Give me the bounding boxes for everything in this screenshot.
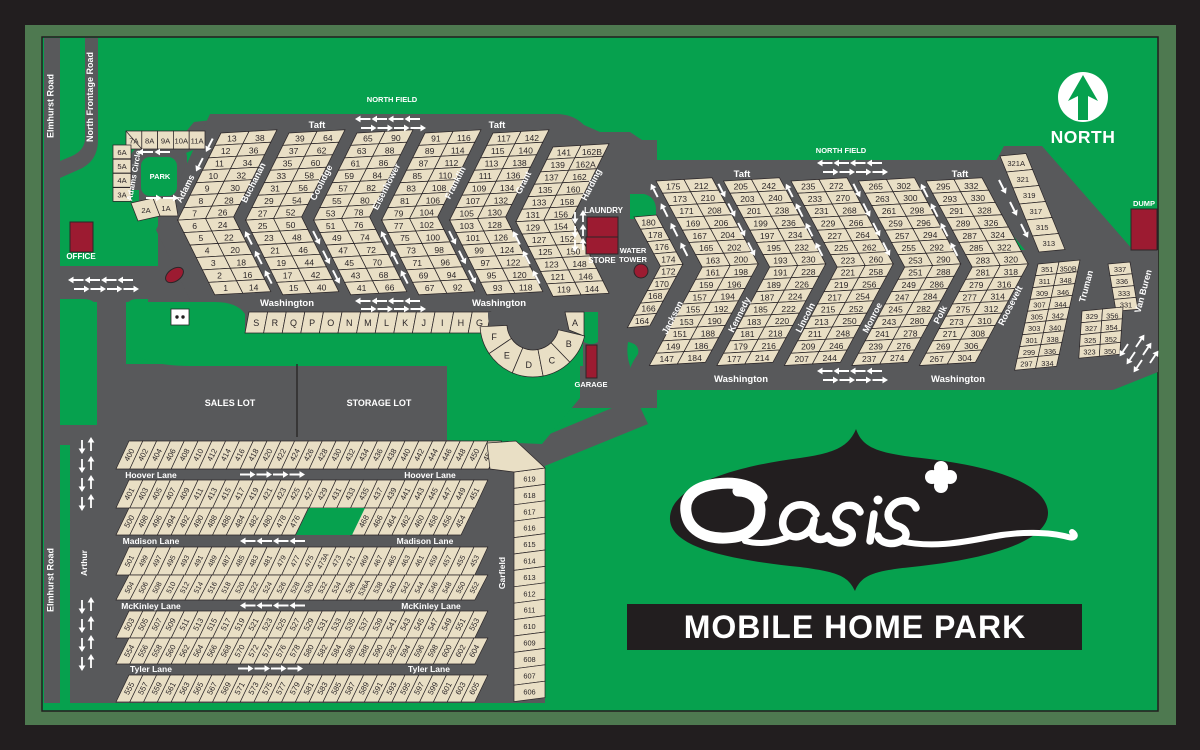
svg-text:Taft: Taft (309, 120, 327, 131)
svg-text:P: P (309, 318, 315, 328)
svg-text:327: 327 (1085, 324, 1097, 333)
svg-text:162A: 162A (576, 160, 596, 170)
svg-text:106: 106 (426, 195, 441, 205)
svg-text:313: 313 (1042, 239, 1055, 248)
svg-text:B: B (566, 339, 572, 349)
svg-text:1A: 1A (161, 204, 171, 213)
svg-text:280: 280 (910, 316, 925, 326)
svg-text:154: 154 (554, 222, 569, 232)
svg-text:49: 49 (332, 233, 342, 243)
svg-text:38: 38 (255, 133, 265, 143)
svg-text:H: H (458, 318, 465, 328)
svg-text:Hoover Lane: Hoover Lane (125, 470, 177, 480)
svg-text:239: 239 (869, 342, 884, 352)
svg-text:NORTH: NORTH (1051, 127, 1116, 147)
svg-text:279: 279 (969, 280, 984, 290)
svg-text:68: 68 (379, 270, 389, 280)
svg-text:40: 40 (317, 282, 327, 292)
svg-text:61: 61 (351, 159, 361, 169)
svg-text:197: 197 (760, 231, 775, 241)
svg-text:121: 121 (551, 272, 566, 282)
svg-text:100: 100 (426, 233, 441, 243)
svg-text:168: 168 (648, 291, 663, 301)
svg-text:39: 39 (295, 134, 305, 144)
svg-text:254: 254 (856, 292, 871, 302)
svg-text:129: 129 (526, 222, 541, 232)
svg-text:101: 101 (466, 233, 481, 243)
svg-text:319: 319 (1023, 191, 1036, 200)
svg-text:Arthur: Arthur (79, 549, 89, 576)
svg-text:Madison Lane: Madison Lane (397, 536, 454, 546)
svg-text:214: 214 (755, 353, 770, 363)
svg-text:146: 146 (579, 272, 594, 282)
svg-text:277: 277 (963, 292, 978, 302)
svg-text:C: C (549, 355, 556, 365)
svg-text:J: J (421, 318, 426, 328)
svg-text:151: 151 (673, 329, 688, 339)
svg-text:308: 308 (971, 329, 986, 339)
svg-text:126: 126 (494, 233, 509, 243)
svg-text:66: 66 (385, 282, 395, 292)
svg-text:133: 133 (532, 197, 547, 207)
svg-text:138: 138 (512, 158, 527, 168)
svg-text:332: 332 (964, 181, 979, 191)
svg-text:89: 89 (425, 146, 435, 156)
svg-text:350: 350 (1104, 347, 1116, 356)
svg-text:229: 229 (821, 219, 836, 229)
svg-text:198: 198 (734, 267, 749, 277)
svg-text:104: 104 (420, 208, 435, 218)
svg-text:A: A (572, 318, 578, 328)
svg-text:205: 205 (734, 182, 749, 192)
svg-text:152: 152 (560, 234, 575, 244)
svg-text:194: 194 (721, 292, 736, 302)
svg-text:173: 173 (673, 194, 688, 204)
svg-text:227: 227 (828, 231, 843, 241)
svg-text:171: 171 (679, 206, 694, 216)
svg-text:I: I (441, 318, 444, 328)
svg-text:305: 305 (1031, 312, 1043, 321)
svg-text:107: 107 (466, 196, 481, 206)
svg-text:193: 193 (773, 255, 788, 265)
svg-text:325: 325 (1084, 336, 1096, 345)
svg-text:Washington: Washington (260, 298, 314, 309)
svg-text:615: 615 (523, 540, 535, 549)
svg-text:608: 608 (523, 655, 535, 664)
svg-text:201: 201 (747, 206, 762, 216)
svg-text:294: 294 (923, 230, 938, 240)
svg-text:10: 10 (209, 171, 219, 181)
svg-text:OFFICE: OFFICE (66, 252, 96, 261)
svg-text:9A: 9A (161, 137, 171, 146)
svg-text:160: 160 (566, 184, 581, 194)
svg-text:33: 33 (277, 171, 287, 181)
svg-text:Elmhurst Road: Elmhurst Road (46, 74, 56, 138)
svg-text:271: 271 (943, 329, 958, 339)
svg-text:283: 283 (976, 255, 991, 265)
svg-text:N: N (346, 318, 353, 328)
svg-text:64: 64 (323, 133, 333, 143)
svg-text:132: 132 (494, 195, 509, 205)
svg-text:135: 135 (538, 185, 553, 195)
svg-text:80: 80 (360, 195, 370, 205)
svg-text:240: 240 (768, 193, 783, 203)
svg-text:184: 184 (688, 353, 703, 363)
svg-text:287: 287 (963, 231, 978, 241)
svg-text:4A: 4A (117, 176, 127, 185)
svg-text:162: 162 (572, 172, 587, 182)
svg-text:321A: 321A (1007, 159, 1026, 168)
svg-text:156: 156 (554, 209, 569, 219)
svg-text:249: 249 (902, 280, 917, 290)
svg-text:79: 79 (394, 208, 404, 218)
svg-text:307: 307 (1033, 301, 1045, 310)
svg-text:58: 58 (305, 170, 315, 180)
svg-text:264: 264 (856, 230, 871, 240)
svg-text:211: 211 (808, 329, 822, 339)
svg-text:616: 616 (523, 524, 535, 533)
svg-text:164: 164 (635, 316, 650, 326)
svg-text:42: 42 (311, 270, 321, 280)
svg-text:22: 22 (224, 233, 234, 243)
svg-text:Hoover Lane: Hoover Lane (404, 470, 456, 480)
svg-text:TOWER: TOWER (619, 255, 647, 264)
svg-text:5A: 5A (117, 162, 127, 171)
svg-text:2: 2 (217, 271, 222, 281)
svg-text:20: 20 (230, 245, 240, 255)
svg-text:95: 95 (487, 271, 497, 281)
svg-text:250: 250 (842, 316, 857, 326)
svg-text:88: 88 (385, 146, 395, 156)
svg-text:314: 314 (991, 292, 1006, 302)
svg-text:183: 183 (747, 317, 762, 327)
svg-text:330: 330 (971, 193, 986, 203)
svg-text:LAUNDRY: LAUNDRY (584, 206, 623, 215)
svg-text:209: 209 (801, 342, 816, 352)
svg-text:268: 268 (842, 206, 857, 216)
svg-text:72: 72 (366, 245, 376, 255)
svg-text:30: 30 (230, 183, 240, 193)
svg-text:235: 235 (801, 182, 816, 192)
svg-text:D: D (525, 360, 532, 370)
svg-text:204: 204 (721, 230, 736, 240)
svg-text:116: 116 (457, 133, 471, 143)
svg-text:300: 300 (903, 193, 918, 203)
svg-text:213: 213 (814, 317, 829, 327)
svg-text:210: 210 (701, 193, 716, 203)
svg-text:180: 180 (641, 218, 656, 228)
svg-text:166: 166 (641, 304, 656, 314)
svg-text:65: 65 (363, 134, 373, 144)
svg-text:317: 317 (1029, 207, 1042, 216)
svg-text:316: 316 (997, 279, 1012, 289)
svg-text:613: 613 (523, 573, 535, 582)
svg-text:13: 13 (227, 134, 237, 144)
svg-text:322: 322 (997, 242, 1012, 252)
svg-text:131: 131 (526, 210, 541, 220)
svg-text:67: 67 (425, 283, 435, 293)
svg-text:199: 199 (753, 219, 768, 229)
svg-text:157: 157 (693, 292, 708, 302)
svg-text:Madison Lane: Madison Lane (123, 536, 180, 546)
svg-text:333: 333 (1118, 289, 1130, 298)
svg-text:11A: 11A (191, 137, 205, 146)
svg-text:74: 74 (360, 233, 370, 243)
svg-text:162B: 162B (582, 147, 602, 157)
svg-text:85: 85 (413, 171, 423, 181)
svg-text:176: 176 (655, 242, 670, 252)
svg-text:265: 265 (869, 182, 884, 192)
svg-text:296: 296 (916, 218, 931, 228)
svg-text:Washington: Washington (714, 374, 768, 385)
svg-text:51: 51 (326, 221, 336, 231)
svg-text:97: 97 (481, 258, 491, 268)
svg-text:242: 242 (762, 181, 777, 191)
svg-text:175: 175 (666, 182, 681, 192)
svg-text:186: 186 (694, 341, 709, 351)
svg-text:618: 618 (523, 491, 535, 500)
svg-text:99: 99 (474, 246, 484, 256)
svg-text:243: 243 (882, 317, 897, 327)
svg-text:Tyler Lane: Tyler Lane (130, 664, 172, 674)
svg-text:52: 52 (286, 208, 296, 218)
svg-text:45: 45 (345, 258, 355, 268)
svg-text:S: S (253, 318, 259, 328)
svg-text:220: 220 (775, 316, 790, 326)
svg-text:48: 48 (292, 233, 302, 243)
svg-text:75: 75 (400, 233, 410, 243)
svg-text:9: 9 (205, 183, 210, 193)
svg-text:DUMP: DUMP (1133, 199, 1155, 208)
svg-text:304: 304 (958, 353, 973, 363)
svg-text:253: 253 (908, 255, 923, 265)
svg-text:122: 122 (506, 258, 521, 268)
svg-text:321: 321 (1016, 175, 1029, 184)
svg-text:16: 16 (243, 270, 253, 280)
svg-text:189: 189 (767, 280, 782, 290)
svg-text:15: 15 (289, 283, 299, 293)
svg-text:611: 611 (524, 606, 536, 615)
svg-text:257: 257 (895, 231, 910, 241)
svg-text:Washington: Washington (931, 374, 985, 385)
svg-text:119: 119 (557, 285, 571, 295)
svg-text:4: 4 (205, 246, 210, 256)
svg-text:174: 174 (661, 254, 676, 264)
svg-text:90: 90 (391, 133, 401, 143)
svg-text:185: 185 (753, 305, 768, 315)
svg-text:34: 34 (243, 158, 253, 168)
svg-text:55: 55 (332, 196, 342, 206)
svg-text:71: 71 (413, 258, 423, 268)
svg-text:PARK: PARK (150, 172, 171, 181)
svg-text:GARAGE: GARAGE (575, 380, 608, 389)
svg-text:329: 329 (1086, 312, 1098, 321)
svg-text:289: 289 (956, 219, 971, 229)
svg-text:5: 5 (199, 233, 204, 243)
svg-text:238: 238 (775, 206, 790, 216)
svg-text:299: 299 (1023, 348, 1035, 357)
svg-text:41: 41 (357, 283, 367, 293)
svg-text:149: 149 (666, 342, 681, 352)
svg-text:Q: Q (290, 318, 297, 328)
svg-text:141: 141 (557, 148, 572, 158)
svg-text:165: 165 (699, 243, 714, 253)
svg-text:232: 232 (795, 242, 810, 252)
svg-text:212: 212 (694, 181, 709, 191)
svg-text:269: 269 (936, 342, 951, 352)
svg-text:56: 56 (298, 183, 308, 193)
svg-text:266: 266 (849, 218, 864, 228)
svg-text:275: 275 (956, 305, 971, 315)
svg-text:M: M (364, 318, 372, 328)
svg-text:36: 36 (249, 146, 259, 156)
svg-text:57: 57 (338, 183, 348, 193)
svg-text:12: 12 (221, 146, 231, 156)
svg-text:WATER: WATER (620, 246, 647, 255)
svg-text:318: 318 (1004, 267, 1019, 277)
svg-text:47: 47 (338, 246, 348, 256)
svg-text:200: 200 (734, 255, 749, 265)
svg-text:226: 226 (795, 279, 810, 289)
svg-text:285: 285 (969, 243, 984, 253)
svg-text:179: 179 (734, 342, 749, 352)
svg-text:43: 43 (351, 271, 361, 281)
svg-text:130: 130 (488, 208, 503, 218)
svg-text:6A: 6A (117, 148, 127, 157)
svg-text:120: 120 (512, 270, 527, 280)
svg-text:272: 272 (829, 181, 844, 191)
svg-text:117: 117 (497, 134, 511, 144)
svg-text:18: 18 (237, 258, 247, 268)
svg-text:607: 607 (523, 671, 535, 680)
svg-text:614: 614 (523, 557, 535, 566)
svg-text:619: 619 (523, 475, 535, 484)
svg-text:163: 163 (706, 255, 721, 265)
svg-text:96: 96 (441, 258, 451, 268)
svg-text:320: 320 (1004, 255, 1019, 265)
svg-text:337: 337 (1114, 265, 1126, 274)
svg-text:252: 252 (849, 304, 864, 314)
svg-text:169: 169 (686, 219, 701, 229)
svg-text:609: 609 (523, 639, 535, 648)
svg-text:190: 190 (707, 316, 722, 326)
svg-text:288: 288 (936, 267, 951, 277)
svg-text:McKinley Lane: McKinley Lane (401, 601, 461, 611)
svg-text:284: 284 (923, 292, 938, 302)
svg-text:315: 315 (1036, 223, 1049, 232)
svg-text:44: 44 (305, 258, 315, 268)
svg-text:127: 127 (532, 235, 547, 245)
svg-text:208: 208 (707, 206, 722, 216)
svg-text:217: 217 (828, 292, 843, 302)
svg-text:612: 612 (523, 589, 535, 598)
svg-text:267: 267 (930, 354, 945, 364)
svg-text:260: 260 (869, 255, 884, 265)
svg-text:24: 24 (218, 220, 228, 230)
svg-text:192: 192 (714, 304, 729, 314)
svg-text:94: 94 (447, 270, 457, 280)
svg-text:114: 114 (451, 146, 465, 156)
svg-text:312: 312 (984, 304, 999, 314)
svg-text:Tyler Lane: Tyler Lane (408, 664, 450, 674)
svg-text:136: 136 (506, 170, 521, 180)
svg-text:105: 105 (460, 208, 475, 218)
svg-text:25: 25 (258, 221, 268, 231)
svg-text:14: 14 (249, 282, 259, 292)
svg-text:256: 256 (862, 279, 877, 289)
svg-text:155: 155 (686, 305, 701, 315)
svg-text:167: 167 (693, 231, 708, 241)
svg-text:29: 29 (264, 196, 274, 206)
svg-text:54: 54 (292, 195, 302, 205)
svg-text:115: 115 (491, 146, 505, 156)
svg-text:37: 37 (289, 146, 299, 156)
svg-text:311: 311 (1039, 277, 1051, 286)
svg-text:336: 336 (1116, 277, 1128, 286)
svg-text:27: 27 (258, 208, 268, 218)
svg-text:113: 113 (485, 159, 499, 169)
svg-text:286: 286 (930, 279, 945, 289)
svg-text:78: 78 (354, 208, 364, 218)
svg-text:207: 207 (795, 354, 810, 364)
svg-text:111: 111 (479, 171, 492, 181)
svg-text:21: 21 (270, 246, 280, 256)
svg-text:326: 326 (984, 218, 999, 228)
svg-text:244: 244 (823, 353, 838, 363)
svg-text:110: 110 (438, 170, 452, 180)
svg-text:298: 298 (910, 206, 925, 216)
svg-text:290: 290 (936, 255, 951, 265)
svg-text:230: 230 (801, 255, 816, 265)
svg-text:617: 617 (523, 507, 535, 516)
svg-text:Elmhurst Road: Elmhurst Road (46, 548, 56, 612)
svg-text:246: 246 (829, 341, 844, 351)
svg-text:144: 144 (585, 284, 600, 294)
svg-text:103: 103 (460, 221, 475, 231)
svg-text:216: 216 (762, 341, 777, 351)
svg-text:248: 248 (836, 329, 851, 339)
svg-text:102: 102 (420, 220, 435, 230)
svg-text:202: 202 (727, 242, 742, 252)
svg-text:328: 328 (977, 206, 992, 216)
svg-text:187: 187 (760, 292, 775, 302)
svg-text:324: 324 (991, 230, 1006, 240)
svg-text:196: 196 (727, 279, 742, 289)
svg-text:Taft: Taft (489, 120, 507, 131)
svg-text:251: 251 (908, 268, 923, 278)
svg-text:124: 124 (500, 245, 515, 255)
svg-text:23: 23 (264, 233, 274, 243)
svg-text:62: 62 (317, 146, 327, 156)
svg-text:334: 334 (1041, 359, 1053, 368)
svg-text:153: 153 (679, 317, 694, 327)
svg-text:273: 273 (949, 317, 964, 327)
svg-text:255: 255 (902, 243, 917, 253)
svg-text:76: 76 (354, 220, 364, 230)
svg-text:26: 26 (218, 208, 228, 218)
svg-text:11: 11 (215, 159, 224, 169)
svg-text:60: 60 (311, 158, 321, 168)
svg-text:84: 84 (373, 170, 383, 180)
svg-text:302: 302 (897, 181, 912, 191)
svg-text:276: 276 (897, 341, 912, 351)
svg-text:224: 224 (788, 292, 803, 302)
svg-text:177: 177 (727, 354, 742, 364)
svg-text:159: 159 (699, 280, 714, 290)
svg-text:303: 303 (1028, 324, 1040, 333)
svg-text:215: 215 (821, 305, 836, 315)
svg-text:10A: 10A (175, 137, 189, 146)
